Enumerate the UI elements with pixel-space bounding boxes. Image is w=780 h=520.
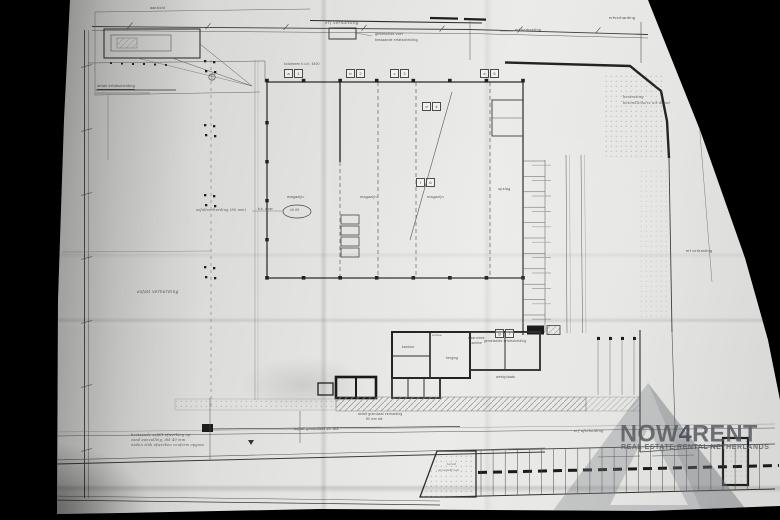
- plan-label: opslag: [498, 187, 510, 191]
- plan-label: erf verharding: [686, 249, 712, 253]
- plan-label: magazijn: [360, 195, 377, 199]
- grid-tag: d4: [422, 102, 441, 111]
- plan-label: naden vlak afwerken conform opgave: [131, 443, 204, 447]
- plan-label: groenstrook: [438, 469, 459, 473]
- plan-label: asfaltverharding (80 mm): [196, 208, 246, 212]
- plan-label: bestrating: [623, 95, 644, 99]
- plan-label: erfverharding: [609, 16, 635, 21]
- grid-tag: f6: [416, 178, 435, 187]
- grid-tag: c3: [390, 69, 409, 78]
- plan-label: aanzicht: [150, 6, 165, 10]
- plan-label: kantine: [470, 342, 482, 346]
- plan-label: kolommen h.o.h. 5400: [284, 63, 320, 67]
- plan-label: gemetselde voet: [375, 33, 403, 37]
- plan-label: ±0.00: [290, 209, 299, 213]
- plan-label: gemetselde erfafscheiding: [484, 340, 526, 344]
- plan-label: asfalt granulaat 40 dik: [294, 427, 339, 431]
- plan-label: kantoor: [402, 346, 415, 350]
- blueprint-paper: aanzichtdetail erfafscheidinggemetselde …: [0, 0, 780, 520]
- plan-label: talud: [447, 463, 456, 467]
- grid-tag: g7: [495, 329, 514, 338]
- plan-label: magazijn: [287, 195, 304, 199]
- grid-tag: a1: [284, 69, 303, 78]
- plan-label: detail erfafscheiding: [97, 84, 135, 90]
- plan-label: erf afscheiding: [574, 429, 604, 433]
- plan-label: 80 mm dik: [366, 418, 383, 422]
- plan-label: erf verharding: [515, 28, 541, 32]
- grid-tag: e5: [480, 69, 499, 78]
- plan-label: betonklinkers uit depot: [623, 101, 670, 105]
- plan-label: entree: [432, 334, 442, 338]
- plan-label: berging: [446, 357, 458, 361]
- grid-tag: b2: [346, 69, 365, 78]
- plan-label: zand aanvulling, dik 40 mm: [131, 438, 185, 442]
- plan-label: bestaande erfafscheiding: [375, 39, 418, 43]
- plan-label: bestaande asfalt afwerking op: [131, 433, 190, 437]
- plan-label: b.k. vloer: [258, 208, 273, 212]
- plan-label: asfalt verharding: [137, 290, 179, 295]
- plan-annotations: aanzichtdetail erfafscheidinggemetselde …: [0, 0, 780, 520]
- photo-of-floorplan: aanzichtdetail erfafscheidinggemetselde …: [0, 0, 780, 520]
- plan-label: magazijn: [427, 195, 444, 199]
- plan-label: erf verharding: [325, 21, 359, 26]
- plan-label: werkplaats: [496, 375, 515, 379]
